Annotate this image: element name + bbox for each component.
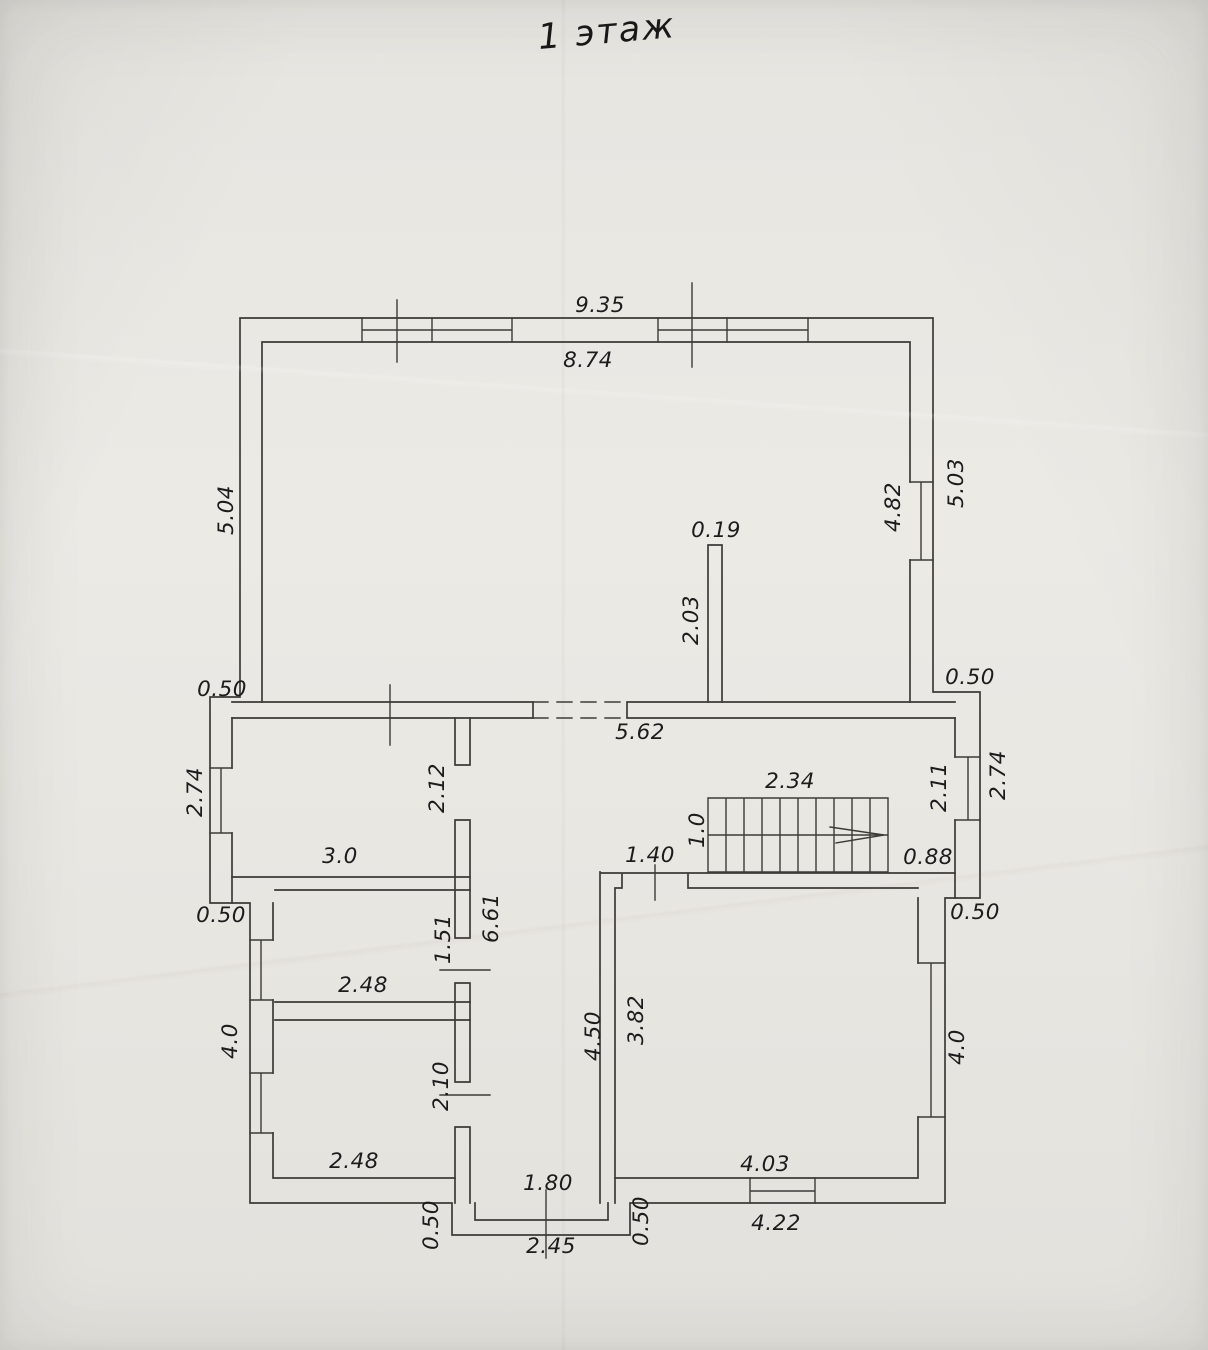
interior-main-wall bbox=[232, 702, 955, 718]
scanned-floor-plan-page: 1 этаж 9.358.745.040.502.740.504.05 bbox=[0, 0, 1208, 1350]
dimension-label-22-3.0: 3.0 bbox=[322, 844, 358, 869]
dimension-label-14-4.0: 4.0 bbox=[945, 1029, 970, 1065]
dimension-label-2-5.04: 5.04 bbox=[214, 485, 239, 535]
wall-stub bbox=[708, 545, 722, 702]
dimension-label-31-4.03: 4.03 bbox=[740, 1152, 790, 1177]
dimension-label-15-0.19: 0.19 bbox=[691, 518, 741, 543]
dimension-label-28-4.50: 4.50 bbox=[581, 1011, 606, 1061]
stair-outline-and-treads bbox=[708, 798, 888, 872]
dimension-label-1-8.74: 8.74 bbox=[563, 348, 613, 373]
dimension-label-7-5.03: 5.03 bbox=[944, 458, 969, 508]
dimension-label-10-2.74: 2.74 bbox=[986, 750, 1011, 800]
dimension-label-29-3.82: 3.82 bbox=[624, 995, 649, 1045]
dimension-label-30-1.80: 1.80 bbox=[523, 1171, 573, 1196]
entry-porch bbox=[475, 1203, 608, 1220]
floor-plan-svg: 9.358.745.040.502.740.504.05.034.820.502… bbox=[0, 0, 1208, 1350]
dimension-label-4-2.74: 2.74 bbox=[183, 767, 208, 817]
dashed-opening bbox=[533, 702, 627, 718]
dimension-label-16-2.03: 2.03 bbox=[679, 595, 704, 645]
staircase bbox=[708, 798, 888, 872]
dimension-label-6-4.0: 4.0 bbox=[218, 1023, 243, 1059]
dimension-label-11-2.11: 2.11 bbox=[927, 762, 952, 812]
dimension-label-35-4.22: 4.22 bbox=[751, 1211, 801, 1236]
dimension-label-18-2.34: 2.34 bbox=[765, 769, 815, 794]
exterior-outer-wall bbox=[210, 318, 980, 1235]
dimension-label-8-4.82: 4.82 bbox=[881, 482, 906, 532]
dimension-label-20-1.40: 1.40 bbox=[625, 843, 675, 868]
dimension-label-5-0.50: 0.50 bbox=[196, 903, 246, 928]
dimension-label-34-0.50: 0.50 bbox=[629, 1196, 654, 1246]
dimension-label-24-1.51: 1.51 bbox=[431, 914, 456, 964]
dimension-label-26-2.10: 2.10 bbox=[429, 1061, 454, 1111]
dimension-label-27-2.48: 2.48 bbox=[329, 1149, 379, 1174]
dimension-label-21-2.12: 2.12 bbox=[425, 763, 450, 813]
dimension-label-0-9.35: 9.35 bbox=[575, 293, 625, 318]
corridor-left-wall bbox=[455, 718, 470, 1203]
dimension-label-25-2.48: 2.48 bbox=[338, 973, 388, 998]
dimension-label-17-5.62: 5.62 bbox=[615, 720, 665, 745]
dimension-label-3-0.50: 0.50 bbox=[197, 677, 247, 702]
dimension-label-33-2.45: 2.45 bbox=[526, 1234, 576, 1259]
dimension-label-12-0.88: 0.88 bbox=[903, 845, 953, 870]
dimension-label-13-0.50: 0.50 bbox=[950, 900, 1000, 925]
dimension-label-9-0.50: 0.50 bbox=[945, 665, 995, 690]
dimension-label-23-6.61: 6.61 bbox=[479, 893, 504, 943]
dimension-labels: 9.358.745.040.502.740.504.05.034.820.502… bbox=[183, 293, 1011, 1259]
window-glyphs bbox=[210, 318, 980, 1203]
dimension-label-32-0.50: 0.50 bbox=[419, 1200, 444, 1250]
dimension-label-19-1.0: 1.0 bbox=[685, 812, 710, 848]
